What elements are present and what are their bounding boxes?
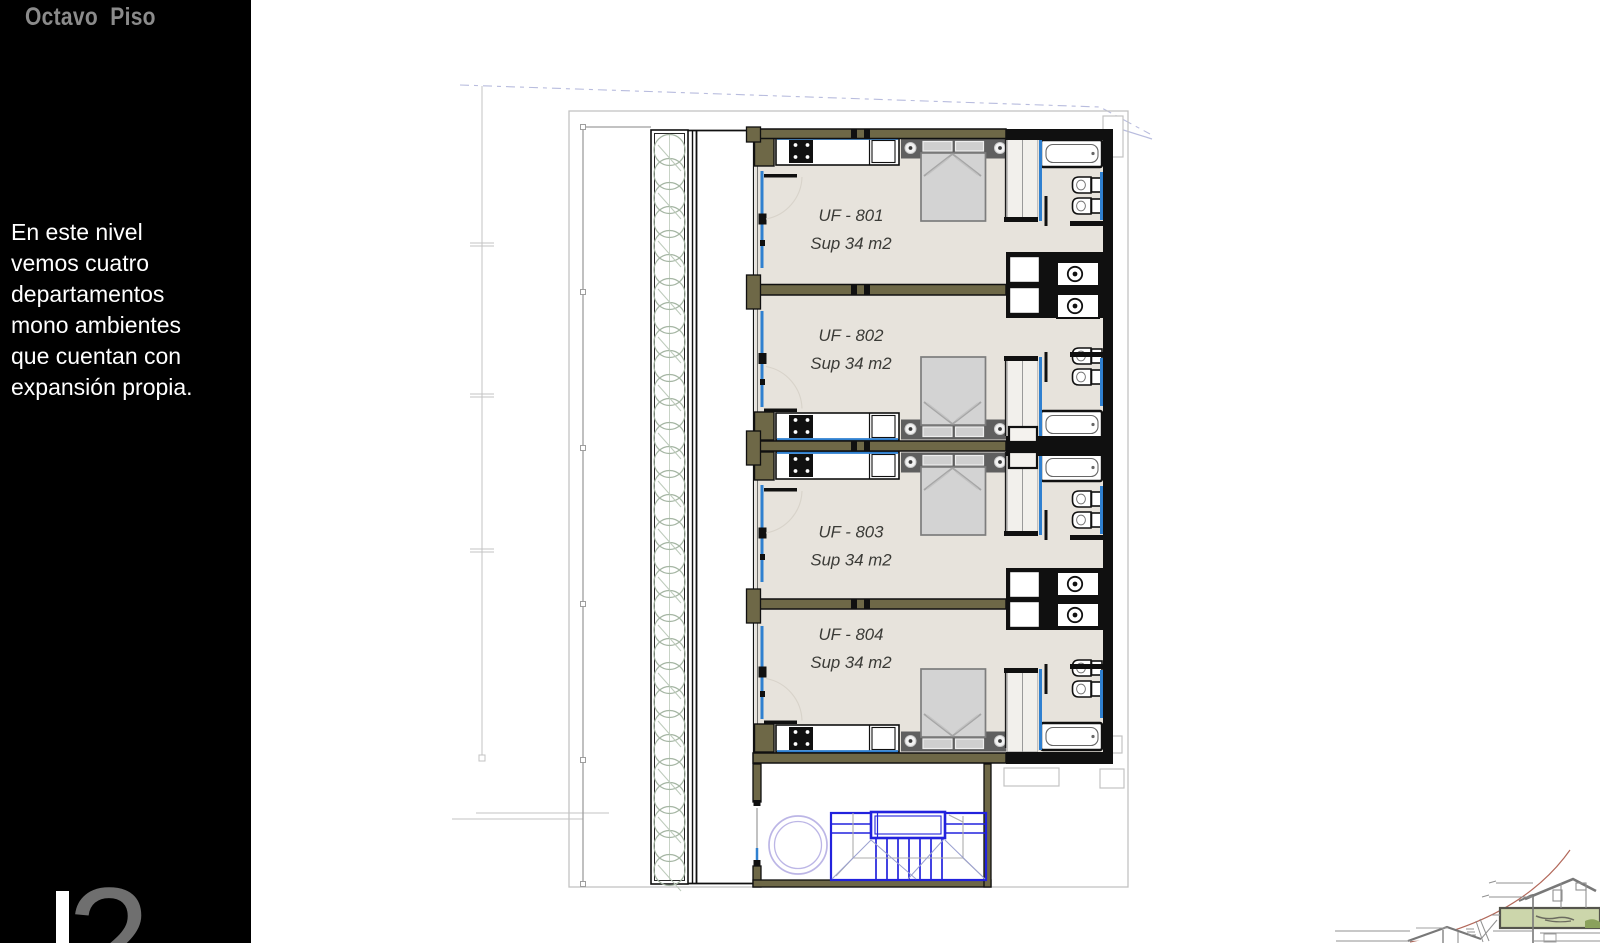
- svg-text:UF - 804: UF - 804: [819, 625, 884, 644]
- svg-text:Sup 34 m2: Sup 34 m2: [810, 354, 892, 373]
- svg-text:Sup 34 m2: Sup 34 m2: [810, 653, 892, 672]
- svg-text:UF - 803: UF - 803: [819, 523, 885, 542]
- svg-text:UF - 801: UF - 801: [819, 206, 884, 225]
- svg-text:UF - 802: UF - 802: [819, 326, 885, 345]
- svg-text:Sup 34 m2: Sup 34 m2: [810, 551, 892, 570]
- svg-text:Sup 34 m2: Sup 34 m2: [810, 234, 892, 253]
